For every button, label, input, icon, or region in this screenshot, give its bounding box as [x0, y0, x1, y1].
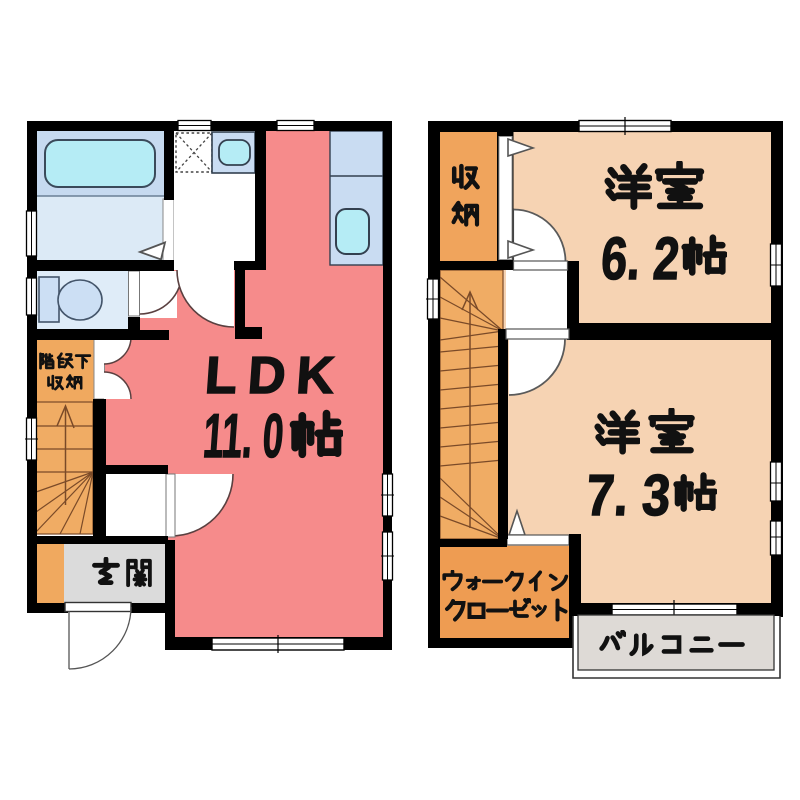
svg-text:LDK: LDK — [203, 347, 347, 405]
svg-text:11. 0: 11. 0 — [201, 402, 286, 471]
svg-text:7. 3: 7. 3 — [584, 463, 673, 528]
svg-text:6. 2: 6. 2 — [599, 225, 682, 292]
